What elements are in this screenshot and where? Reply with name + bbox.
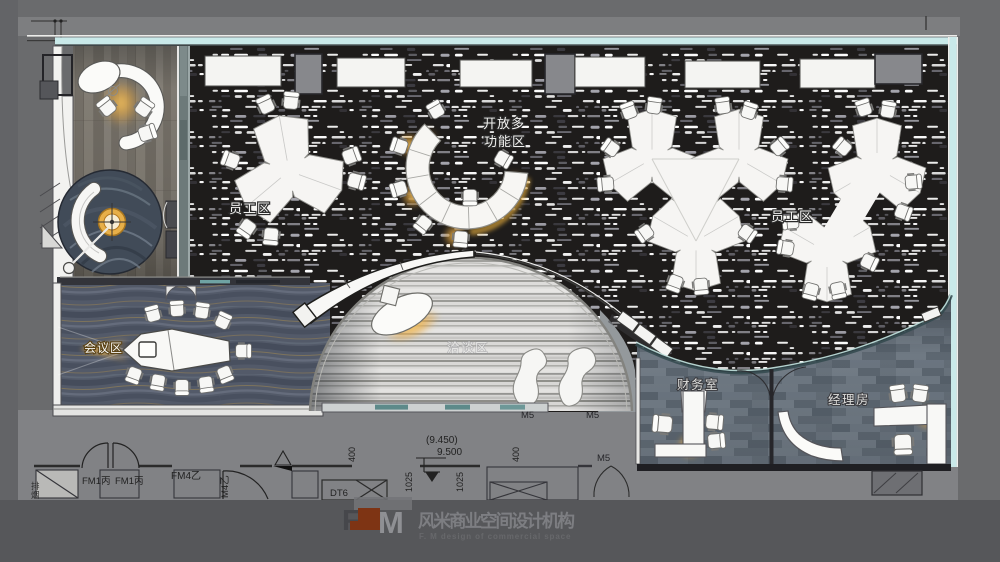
svg-text:开放多: 开放多 — [483, 116, 525, 131]
svg-text:400: 400 — [347, 447, 357, 462]
svg-text:M5: M5 — [521, 410, 534, 421]
svg-text:M4乙: M4乙 — [220, 475, 231, 498]
svg-text:1025: 1025 — [455, 472, 465, 492]
svg-text:风米商业空间设计机构: 风米商业空间设计机构 — [418, 511, 574, 531]
svg-text:会议区: 会议区 — [84, 341, 123, 355]
svg-text:1025: 1025 — [404, 472, 414, 492]
svg-text:财务室: 财务室 — [677, 377, 719, 392]
svg-text:M: M — [378, 505, 404, 540]
svg-text:DT6: DT6 — [330, 488, 348, 499]
svg-text:FM1丙: FM1丙 — [82, 476, 111, 487]
svg-text:FM4乙: FM4乙 — [171, 470, 201, 482]
svg-text:洽谈区: 洽谈区 — [447, 341, 489, 355]
svg-text:烟: 烟 — [31, 490, 40, 500]
svg-text:经理房: 经理房 — [828, 392, 870, 407]
svg-text:FM1丙: FM1丙 — [115, 476, 144, 487]
svg-text:M5: M5 — [586, 410, 599, 421]
svg-text:(9.450): (9.450) — [426, 435, 458, 446]
svg-text:F. M design of commercial spac: F. M design of commercial space — [419, 532, 571, 541]
svg-text:M5: M5 — [597, 453, 610, 464]
svg-text:9.500: 9.500 — [437, 447, 462, 458]
svg-text:员工区: 员工区 — [771, 209, 813, 224]
svg-text:员工区: 员工区 — [229, 201, 271, 216]
svg-text:功能区: 功能区 — [484, 134, 526, 149]
svg-text:400: 400 — [511, 447, 521, 462]
